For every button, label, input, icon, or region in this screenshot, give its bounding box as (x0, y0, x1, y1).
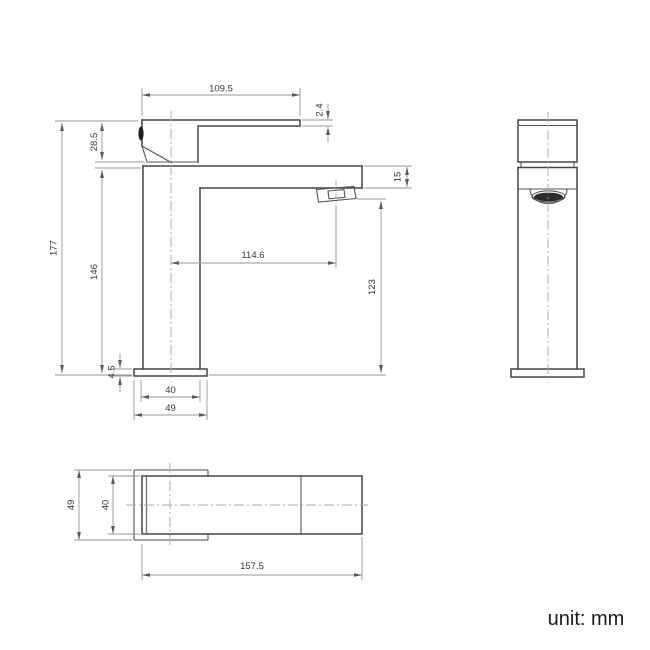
handle-pivot-detail (138, 127, 143, 141)
dim-label-lever-width: 40 (101, 500, 112, 511)
dim-label-base-depth: 49 (66, 500, 77, 511)
dim-body-width: 40 (141, 380, 200, 402)
top-view: 49 40 157.5 (66, 463, 368, 580)
aerator-side (530, 190, 567, 204)
dim-body-height: 146 (89, 168, 141, 373)
dim-label-lever-tip-thickness: 2.4 (315, 103, 326, 116)
dim-lever-length: 109.5 (142, 84, 300, 117)
dim-outlet-height: 123 (209, 199, 386, 375)
dim-label-outlet-height: 123 (367, 279, 378, 295)
dim-label-base-thickness: 4.5 (107, 365, 118, 378)
faucet-dimension-drawing: 109.5 2.4 28.5 177 146 (0, 0, 650, 650)
dim-label-overall-height: 177 (49, 240, 60, 256)
dim-spout-height: 15 (364, 166, 412, 188)
dim-label-overall-length: 157.5 (240, 561, 264, 572)
technical-drawing-page: 109.5 2.4 28.5 177 146 (0, 0, 650, 650)
dim-overall-length: 157.5 (142, 537, 362, 580)
dim-base-thickness: 4.5 (107, 353, 133, 392)
unit-note: unit: mm (548, 608, 625, 630)
side-view-outline (511, 120, 584, 377)
dim-label-body-height: 146 (89, 264, 100, 280)
dim-label-base-width: 49 (165, 403, 176, 414)
dim-label-spout-reach: 114.6 (241, 250, 264, 261)
dim-overall-height: 177 (49, 123, 133, 375)
dim-label-handle-rise: 28.5 (89, 133, 100, 152)
front-view-outline (134, 120, 362, 376)
dim-label-lever-length: 109.5 (209, 84, 233, 95)
dim-lever-tip-thickness: 2.4 (302, 103, 333, 142)
dim-label-body-width: 40 (165, 385, 176, 396)
dim-spout-reach: 114.6 (171, 205, 336, 268)
front-view: 109.5 2.4 28.5 177 146 (49, 84, 413, 421)
dim-handle-rise: 28.5 (55, 121, 145, 162)
side-view (511, 112, 584, 383)
dim-base-depth: 49 (66, 470, 132, 540)
dim-label-spout-height: 15 (393, 172, 404, 183)
